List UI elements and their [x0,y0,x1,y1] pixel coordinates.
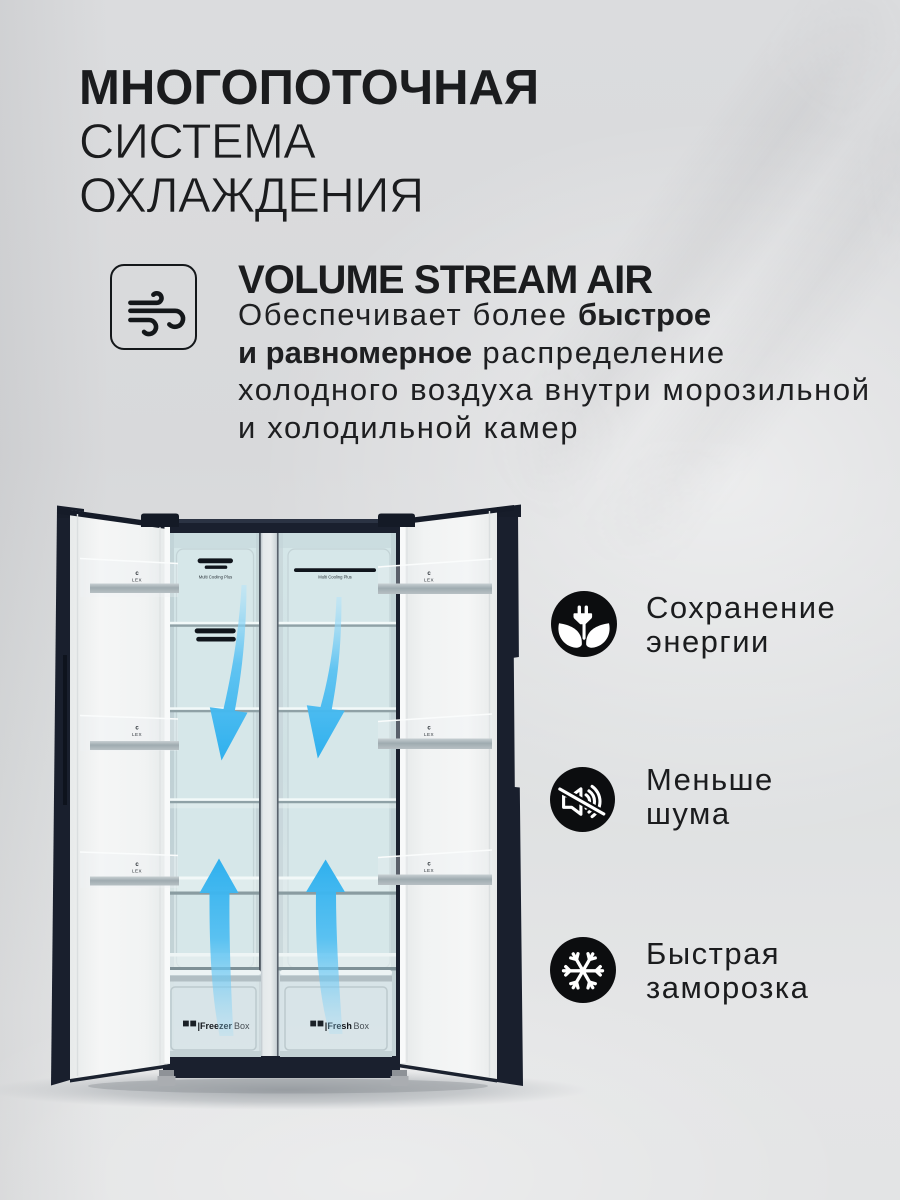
svg-text:LEX: LEX [424,868,434,873]
svg-text:Box: Box [354,1021,370,1031]
svg-text:LEX: LEX [132,732,142,737]
svg-text:LEX: LEX [132,869,142,874]
svg-text:LEX: LEX [132,578,142,583]
svg-text:LEX: LEX [424,732,434,737]
svg-text:LEX: LEX [424,578,434,583]
svg-text:Box: Box [234,1021,250,1031]
svg-text:Multi Cooling Plus: Multi Cooling Plus [318,575,352,580]
svg-text:Multi Cooling Plus: Multi Cooling Plus [199,575,233,580]
